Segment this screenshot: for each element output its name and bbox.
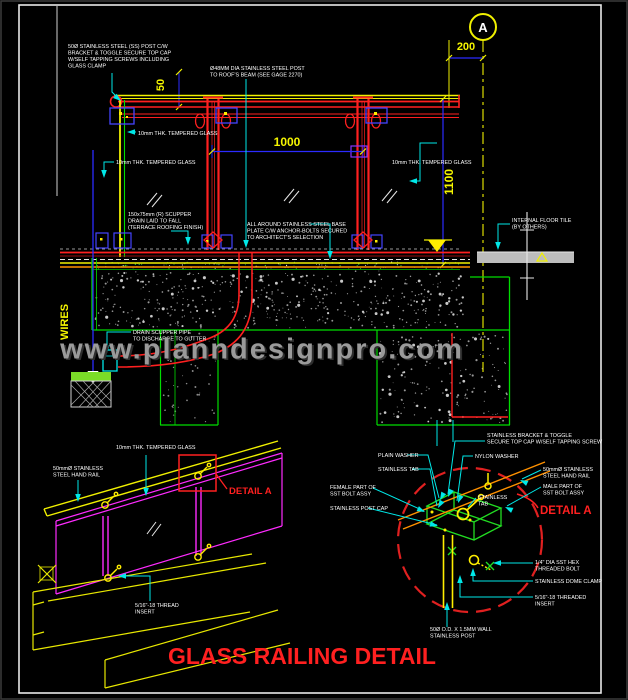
glass-label: 10mm THK. TEMPERED GLASS <box>138 131 218 137</box>
post-spec-label: 50Ø O.D. X 1.5MM WALL <box>430 627 492 633</box>
floor-note-line: INTERNAL FLOOR TILE <box>512 218 572 224</box>
tab-note-line: TAB <box>478 502 488 508</box>
iso-insert-note: INSERT <box>135 610 155 616</box>
post-note2-line: Ø48MM DIA STAINLESS STEEL POST <box>210 66 305 72</box>
glass-label: 10mm THK. TEMPERED GLASS <box>392 160 472 166</box>
dim-200-text: 200 <box>457 41 475 53</box>
glass-hatch-marks <box>147 189 397 207</box>
male-part-label: MALE PART OF <box>543 484 583 490</box>
drawing-title: GLASS RAILING DETAIL <box>168 643 436 669</box>
iso-top-cap <box>44 441 281 516</box>
top-handrail <box>111 95 461 118</box>
female-part-label: FEMALE PART OF <box>330 485 377 491</box>
hex-bolt-label: 1/4" DIA SST HEX <box>535 560 579 566</box>
glass-railing-cad-drawing: A 200 50 <box>0 0 628 700</box>
bracket-note-line: SECURE TOP CAP W/SELF TAPPING SCREW <box>487 440 603 446</box>
female-part-label: SST BOLT ASSY <box>330 492 371 498</box>
finish-level-marker <box>424 240 452 252</box>
dimension-50: 50 <box>155 69 182 110</box>
male-part-label: SST BOLT ASSY <box>543 491 584 497</box>
detail-post <box>444 535 453 608</box>
dimension-1000: 1000 <box>209 135 366 158</box>
dim-1000-text: 1000 <box>274 135 301 149</box>
iso-glass-hatch <box>147 522 161 536</box>
post-note-line: GLASS CLAMP <box>68 64 106 70</box>
junction-box-top <box>71 372 111 381</box>
post-spec-label: STAINLESS POST <box>430 634 476 640</box>
scupper-note-line: (TERRACE ROOFING FINISH) <box>128 225 203 231</box>
base-note-line: ALL AROUND STAINLESS STEEL BASE <box>247 222 346 228</box>
detail-handrail-note: 50mmØ STAINLESS <box>543 467 593 473</box>
threaded-insert-label: 5/16"-18 THREADED <box>535 595 586 601</box>
iso-insert-note: 5/16"-18 THREAD <box>135 603 179 609</box>
dome-clamp-label: STAINLESS DOME CLAMP <box>535 579 602 585</box>
scupper-note-line: DRAIN LAID TO FALL <box>128 219 181 225</box>
stainless-tab-label: STAINLESS TAB <box>378 467 419 473</box>
post-note2-line: TO ROOF'S BEAM (SEE GAGE 2270) <box>210 73 303 79</box>
cad-drawing-canvas: A 200 50 <box>0 0 628 700</box>
detail-a-view: DETAIL A <box>330 420 603 640</box>
bracket-note-line: STAINLESS BRACKET & TOGGLE <box>487 433 572 439</box>
post-note-line: BRACKET & TOGGLE SECURE TOP CAP <box>68 51 171 57</box>
post-note-line: W/SELF TAPPING SCREWS INCLUDING <box>68 57 169 63</box>
detail-boundary-circle <box>398 468 542 612</box>
iso-glass-label: 10mm THK. TEMPERED GLASS <box>116 445 196 451</box>
detail-a-reference: DETAIL A <box>229 486 272 497</box>
floor-screed <box>477 252 574 263</box>
main-annotations: 50Ø STAINLESS STEEL (SS) POST C/W BRACKE… <box>68 44 572 343</box>
scupper-note-line: 150x75mm (R) SCUPPER <box>128 212 191 218</box>
iso-detail-callout: DETAIL A <box>179 455 272 497</box>
detail-handrail-note: STEEL HAND RAIL <box>543 474 590 480</box>
concrete-structure <box>92 212 574 425</box>
iso-handrail-note: STEEL HAND RAIL <box>53 473 100 479</box>
detail-a-title: DETAIL A <box>540 505 592 517</box>
glass-label: 10mm THK. TEMPERED GLASS <box>116 160 196 166</box>
threaded-insert-label: INSERT <box>535 602 555 608</box>
base-note-line: TO ARCHITECT'S SELECTION <box>247 235 323 241</box>
dimension-200: 200 <box>446 40 486 108</box>
iso-posts <box>103 487 201 576</box>
floor-layers <box>60 249 470 270</box>
detail-leader-lines <box>368 420 541 627</box>
post-note-line: 50Ø STAINLESS STEEL (SS) POST C/W <box>68 44 169 50</box>
post-cap-label: STAINLESS POST CAP <box>330 506 388 512</box>
hex-bolt-label: THREADED BOLT <box>535 567 581 573</box>
detail-annotations: STAINLESS BRACKET & TOGGLE SECURE TOP CA… <box>330 433 603 640</box>
floor-note-line: (BY OTHERS) <box>512 225 547 231</box>
watermark: www.planndesignpro.com www.planndesignpr… <box>59 334 466 368</box>
nylon-washer-label: NYLON WASHER <box>475 454 519 460</box>
tab-note-line: STAINLESS <box>478 495 508 501</box>
section-marker-letter: A <box>478 20 488 35</box>
dim-50-text: 50 <box>155 79 167 91</box>
base-note-line: PLATE C/W ANCHOR-BOLTS SECURED <box>247 229 347 235</box>
iso-handrail-note: 50mmØ STAINLESS <box>53 466 103 472</box>
section-marker-a: A <box>470 14 496 372</box>
plain-washer-label: PLAIN WASHER <box>378 453 419 459</box>
watermark-text: www.planndesignpro.com <box>59 334 464 366</box>
dim-1100-text: 1100 <box>442 169 456 195</box>
